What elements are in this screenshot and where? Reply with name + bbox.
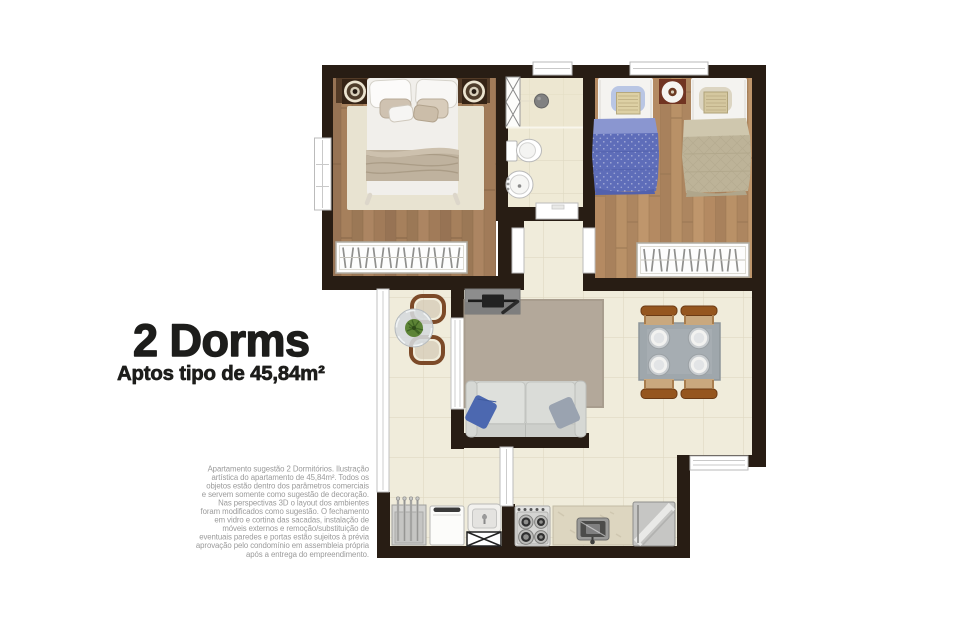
svg-text:Aptos tipo de 45,84m²: Aptos tipo de 45,84m² [117,363,325,385]
svg-text:após a entrega do empreendimen: após a entrega do empreendimento. [246,550,369,559]
svg-text:2 Dorms: 2 Dorms [133,315,310,366]
